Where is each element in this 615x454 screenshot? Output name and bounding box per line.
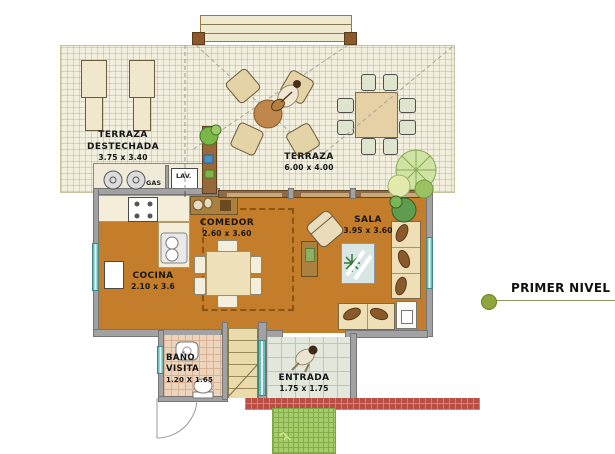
person-icon [292, 346, 318, 373]
burner-icon [135, 202, 153, 219]
terraza-label: TERRAZA 6.00 x 4.00 [268, 151, 350, 173]
roof-dashed-line [316, 47, 452, 160]
patio-chair-icon [225, 68, 262, 105]
plant-icon [388, 150, 436, 198]
sink-icon [161, 233, 187, 263]
jar-icon [193, 198, 231, 211]
legend-line [488, 300, 615, 301]
plant-icon [280, 433, 290, 440]
level-title: PRIMER NIVEL [511, 281, 610, 295]
sala-label: SALA 3.95 x 3.60 [327, 214, 409, 236]
stair-cut-line [229, 364, 258, 396]
terraza-destechada-label: TERRAZA DESTECHADA 3.75 x 3.40 [82, 129, 164, 163]
appliance-icon [220, 200, 231, 211]
pillow-icon [342, 223, 412, 323]
legend-dot [481, 294, 497, 310]
comedor-label: COMEDOR 2.60 x 3.60 [186, 217, 268, 239]
gas-cylinder-icon [104, 171, 145, 189]
floor-plan: LAV. GAS [0, 0, 615, 454]
cocina-label: COCINA 2.10 x 3.6 [113, 270, 193, 292]
patio-chair-icon [230, 122, 265, 157]
door-swing-arc [157, 398, 197, 438]
bano-visita-label: BAÑO VISITA 1.20 X 1.65 [166, 353, 224, 385]
entrada-label: ENTRADA 1.75 x 1.75 [264, 372, 344, 394]
plant-icon [200, 125, 221, 178]
